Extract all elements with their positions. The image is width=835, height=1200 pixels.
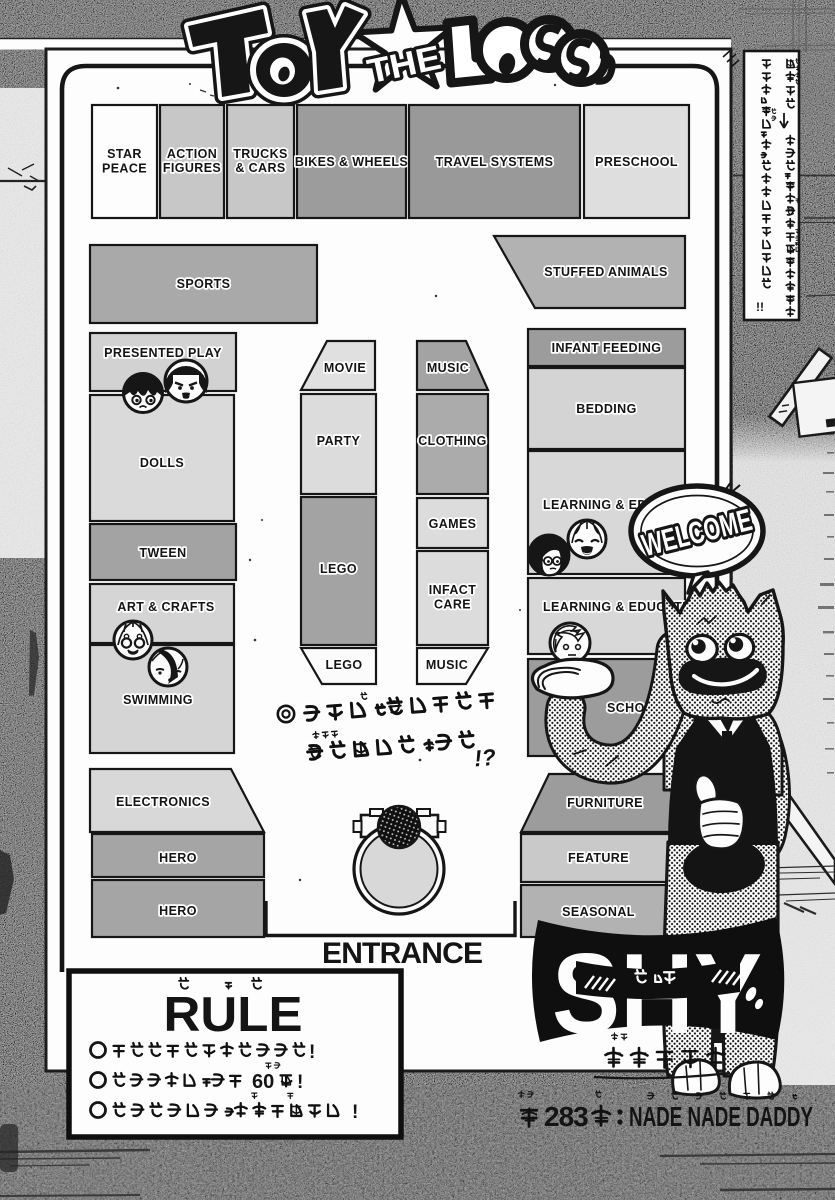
svg-text:LEGO: LEGO bbox=[320, 562, 357, 576]
svg-text:PRESCHOOL: PRESCHOOL bbox=[595, 155, 678, 169]
svg-text:FURNITURE: FURNITURE bbox=[567, 796, 643, 810]
svg-text:FIGURES: FIGURES bbox=[163, 161, 221, 175]
svg-text:PEACE: PEACE bbox=[102, 162, 147, 176]
svg-text:BEDDING: BEDDING bbox=[576, 402, 636, 416]
svg-text:INFANT FEEDING: INFANT FEEDING bbox=[552, 341, 662, 355]
svg-text:!: ! bbox=[309, 1042, 315, 1063]
svg-text:NADE NADE DADDY: NADE NADE DADDY bbox=[629, 1101, 813, 1132]
svg-text:DOLLS: DOLLS bbox=[140, 456, 184, 470]
svg-text:!!: !! bbox=[756, 300, 764, 314]
svg-text:GAMES: GAMES bbox=[429, 517, 477, 531]
svg-text:283: 283 bbox=[544, 1101, 588, 1132]
svg-text:!: ! bbox=[352, 1102, 358, 1123]
svg-text:MUSIC: MUSIC bbox=[427, 361, 469, 375]
svg-text:TRAVEL SYSTEMS: TRAVEL SYSTEMS bbox=[436, 155, 554, 169]
svg-text:& CARS: & CARS bbox=[235, 161, 285, 175]
svg-text:SEASONAL: SEASONAL bbox=[562, 905, 635, 919]
svg-text:ELECTRONICS: ELECTRONICS bbox=[116, 795, 210, 809]
svg-text:TWEEN: TWEEN bbox=[139, 546, 186, 560]
svg-text:MUSIC: MUSIC bbox=[426, 658, 468, 672]
svg-text:INFACT: INFACT bbox=[429, 583, 477, 597]
svg-text:CARE: CARE bbox=[434, 598, 471, 612]
svg-text:FEATURE: FEATURE bbox=[568, 851, 629, 865]
svg-text:STUFFED ANIMALS: STUFFED ANIMALS bbox=[544, 265, 668, 279]
svg-text:TRUCKS: TRUCKS bbox=[233, 147, 287, 161]
svg-text:MOVIE: MOVIE bbox=[324, 361, 366, 375]
svg-text:HERO: HERO bbox=[159, 851, 197, 865]
svg-text:60: 60 bbox=[252, 1071, 274, 1093]
svg-text:RULE: RULE bbox=[164, 988, 303, 1042]
svg-text:LEGO: LEGO bbox=[325, 658, 362, 672]
svg-text:!?: !? bbox=[473, 744, 497, 772]
svg-text:SPORTS: SPORTS bbox=[177, 277, 231, 291]
svg-text:PARTY: PARTY bbox=[317, 434, 361, 448]
svg-text:CLOTHING: CLOTHING bbox=[418, 434, 486, 448]
svg-text:HERO: HERO bbox=[159, 904, 197, 918]
svg-text:STAR: STAR bbox=[107, 147, 142, 161]
svg-text:!: ! bbox=[297, 1072, 303, 1093]
svg-text:ART & CRAFTS: ART & CRAFTS bbox=[117, 600, 214, 614]
svg-text:ENTRANCE: ENTRANCE bbox=[322, 937, 485, 970]
svg-text:PRESENTED PLAY: PRESENTED PLAY bbox=[104, 346, 222, 360]
svg-text:BIKES & WHEELS: BIKES & WHEELS bbox=[295, 155, 408, 169]
svg-text:SWIMMING: SWIMMING bbox=[123, 693, 193, 707]
svg-text:ACTION: ACTION bbox=[167, 147, 217, 161]
